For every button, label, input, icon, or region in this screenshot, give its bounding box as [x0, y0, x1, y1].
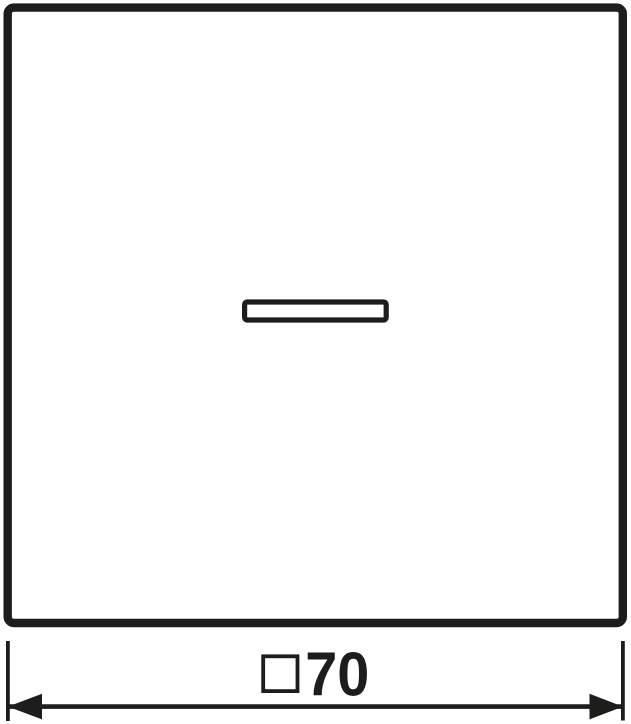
svg-text:70: 70: [305, 640, 369, 709]
